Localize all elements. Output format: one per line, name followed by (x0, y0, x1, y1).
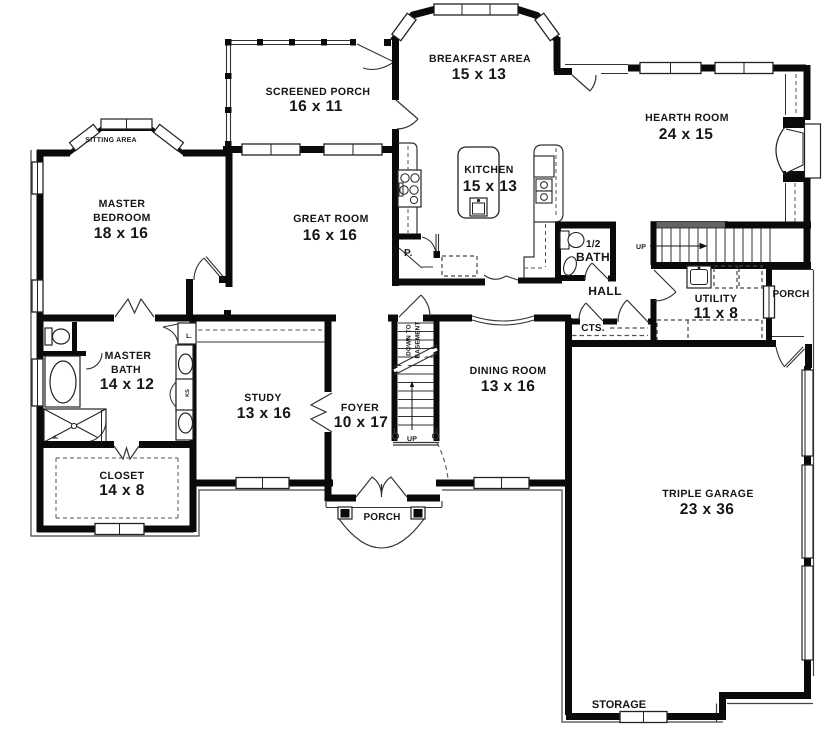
svg-text:KITCHEN: KITCHEN (464, 164, 513, 176)
svg-text:16 x 11: 16 x 11 (289, 98, 343, 115)
svg-text:15 x 13: 15 x 13 (452, 66, 507, 83)
svg-text:14 x 12: 14 x 12 (100, 376, 155, 393)
svg-text:P.: P. (404, 248, 413, 259)
svg-text:PORCH: PORCH (363, 512, 400, 523)
svg-text:SITTING AREA: SITTING AREA (85, 137, 137, 144)
svg-text:HALL: HALL (588, 284, 622, 298)
svg-text:24 x 15: 24 x 15 (659, 126, 714, 143)
svg-text:MASTER: MASTER (99, 198, 146, 210)
svg-text:15 x 13: 15 x 13 (463, 178, 518, 195)
svg-text:10 x 17: 10 x 17 (334, 414, 389, 431)
svg-text:STUDY: STUDY (244, 392, 282, 404)
svg-text:GREAT ROOM: GREAT ROOM (293, 213, 369, 225)
svg-text:BATH: BATH (576, 250, 610, 264)
svg-text:16 x 16: 16 x 16 (303, 227, 358, 244)
svg-text:TRIPLE GARAGE: TRIPLE GARAGE (662, 488, 754, 500)
svg-text:HEARTH ROOM: HEARTH ROOM (645, 112, 729, 124)
svg-text:DINING ROOM: DINING ROOM (470, 365, 547, 377)
svg-text:18 x 16: 18 x 16 (94, 225, 149, 242)
svg-text:23 x 36: 23 x 36 (680, 501, 735, 518)
svg-text:SCREENED PORCH: SCREENED PORCH (266, 86, 371, 98)
svg-text:1/2: 1/2 (586, 239, 601, 250)
svg-text:BATH: BATH (111, 364, 141, 376)
svg-text:L.: L. (186, 333, 192, 340)
svg-text:KS: KS (185, 389, 191, 397)
svg-text:CTS.: CTS. (581, 323, 605, 334)
svg-text:13 x 16: 13 x 16 (237, 405, 292, 422)
svg-text:13 x 16: 13 x 16 (481, 378, 536, 395)
svg-text:CLOSET: CLOSET (100, 470, 145, 482)
svg-text:BREAKFAST AREA: BREAKFAST AREA (429, 53, 531, 65)
svg-text:UP: UP (636, 244, 646, 251)
svg-text:DOWN TO: DOWN TO (406, 324, 413, 356)
svg-text:UTILITY: UTILITY (695, 293, 737, 305)
svg-text:FOYER: FOYER (341, 402, 379, 414)
svg-text:BEDROOM: BEDROOM (93, 212, 151, 224)
svg-text:BASEMENT: BASEMENT (415, 322, 422, 359)
svg-text:PORCH: PORCH (772, 289, 809, 300)
svg-text:MASTER: MASTER (105, 350, 152, 362)
svg-text:STORAGE: STORAGE (592, 699, 646, 711)
svg-text:14 x 8: 14 x 8 (99, 482, 145, 499)
